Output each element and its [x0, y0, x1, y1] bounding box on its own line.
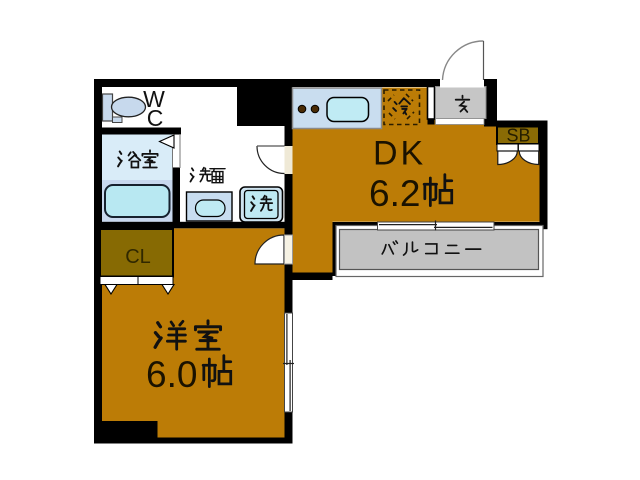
svg-text:C: C: [147, 105, 164, 131]
svg-text:DK: DK: [373, 135, 426, 173]
svg-text:CL: CL: [125, 246, 151, 268]
svg-text:6.0: 6.0: [146, 354, 197, 395]
svg-text:6.2: 6.2: [369, 173, 420, 214]
svg-text:SB: SB: [506, 126, 530, 146]
